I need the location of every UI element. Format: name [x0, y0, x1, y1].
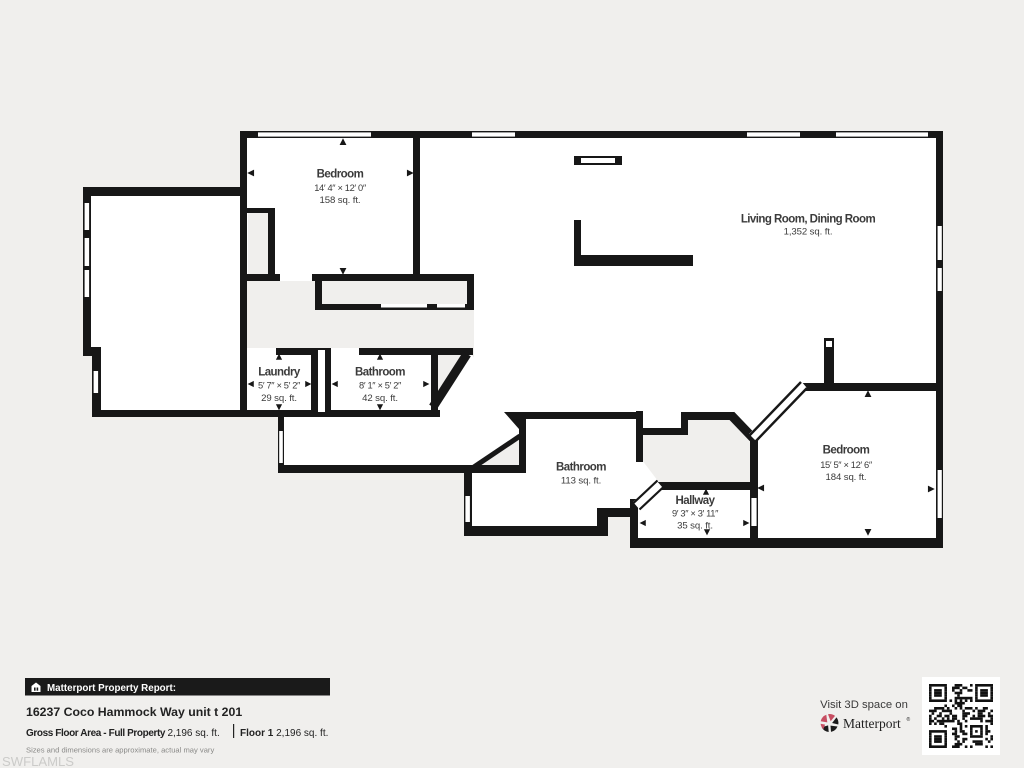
svg-text:Bathroom: Bathroom: [355, 367, 405, 379]
svg-text:158 sq. ft.: 158 sq. ft.: [319, 195, 360, 206]
svg-text:29 sq. ft.: 29 sq. ft.: [261, 393, 297, 404]
svg-text:Matterport: Matterport: [843, 716, 901, 731]
svg-text:42 sq. ft.: 42 sq. ft.: [362, 393, 398, 404]
svg-text:Laundry: Laundry: [258, 367, 301, 379]
svg-text:Hallway: Hallway: [676, 495, 716, 507]
svg-text:Bedroom: Bedroom: [823, 445, 870, 457]
svg-text:Matterport Property Report:: Matterport Property Report:: [47, 683, 176, 694]
svg-text:Bedroom: Bedroom: [317, 169, 364, 181]
svg-text:1,352 sq. ft.: 1,352 sq. ft.: [784, 227, 833, 238]
svg-text:SWFLAMLS: SWFLAMLS: [2, 754, 74, 768]
svg-text:8′ 1″ × 5′ 2″: 8′ 1″ × 5′ 2″: [359, 381, 402, 391]
svg-text:184 sq. ft.: 184 sq. ft.: [825, 472, 866, 483]
svg-text:®: ®: [907, 716, 911, 723]
svg-text:15′ 5″ × 12′ 6″: 15′ 5″ × 12′ 6″: [820, 460, 873, 470]
svg-text:9′ 3″ × 3′ 11″: 9′ 3″ × 3′ 11″: [672, 509, 719, 519]
svg-text:Floor 1 2,196 sq. ft.: Floor 1 2,196 sq. ft.: [240, 728, 328, 739]
svg-text:Living Room, Dining Room: Living Room, Dining Room: [741, 214, 876, 226]
svg-text:14′ 4″ × 12′ 0″: 14′ 4″ × 12′ 0″: [314, 183, 367, 193]
svg-text:5′ 7″ × 5′ 2″: 5′ 7″ × 5′ 2″: [258, 381, 301, 391]
svg-text:Bathroom: Bathroom: [556, 462, 606, 474]
svg-text:16237 Coco Hammock Way unit t: 16237 Coco Hammock Way unit t 201: [26, 705, 242, 719]
svg-text:35 sq. ft.: 35 sq. ft.: [677, 521, 713, 532]
svg-text:113 sq. ft.: 113 sq. ft.: [561, 476, 601, 487]
svg-text:Visit 3D space on: Visit 3D space on: [820, 699, 908, 711]
svg-text:Gross Floor Area - Full Proper: Gross Floor Area - Full Property 2,196 s…: [26, 728, 220, 739]
